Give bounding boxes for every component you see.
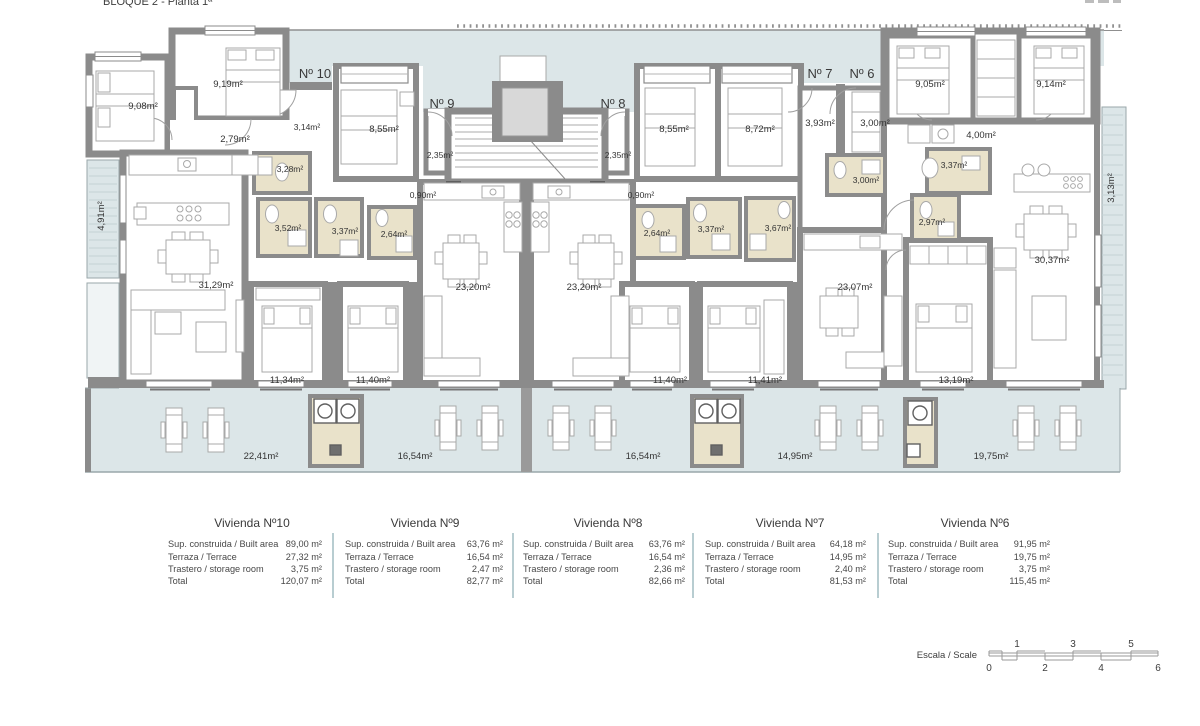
svg-text:1: 1 xyxy=(1014,639,1020,650)
svg-text:3,52m²: 3,52m² xyxy=(275,223,302,233)
svg-text:19,75m²: 19,75m² xyxy=(974,451,1009,462)
svg-text:Terraza / Terrace: Terraza / Terrace xyxy=(888,552,957,562)
svg-text:3,37m²: 3,37m² xyxy=(332,226,359,236)
svg-text:0,90m²: 0,90m² xyxy=(410,190,437,200)
svg-text:2,40 m²: 2,40 m² xyxy=(835,564,866,574)
svg-text:2,47 m²: 2,47 m² xyxy=(472,564,503,574)
svg-text:Trastero / storage room: Trastero / storage room xyxy=(888,564,984,574)
svg-text:Total: Total xyxy=(888,576,907,586)
svg-text:14,95m²: 14,95m² xyxy=(778,451,813,462)
svg-text:Nº 7: Nº 7 xyxy=(808,66,833,81)
svg-text:Trastero / storage room: Trastero / storage room xyxy=(345,564,441,574)
svg-text:3,28m²: 3,28m² xyxy=(277,164,304,174)
svg-text:9,14m²: 9,14m² xyxy=(1036,79,1066,90)
svg-text:2,35m²: 2,35m² xyxy=(605,150,632,160)
svg-text:23,20m²: 23,20m² xyxy=(567,282,602,293)
svg-text:11,34m²: 11,34m² xyxy=(270,375,304,386)
svg-text:Nº 8: Nº 8 xyxy=(601,96,626,111)
svg-text:Trastero / storage room: Trastero / storage room xyxy=(523,564,619,574)
svg-text:4,91m²: 4,91m² xyxy=(96,201,107,231)
svg-text:2,36 m²: 2,36 m² xyxy=(654,564,685,574)
svg-text:81,53 m²: 81,53 m² xyxy=(830,576,866,586)
svg-text:3,93m²: 3,93m² xyxy=(805,118,835,129)
svg-text:4: 4 xyxy=(1098,663,1104,674)
svg-text:3,37m²: 3,37m² xyxy=(941,160,968,170)
svg-text:Total: Total xyxy=(523,576,542,586)
svg-text:2,64m²: 2,64m² xyxy=(644,228,671,238)
svg-text:Terraza / Terrace: Terraza / Terrace xyxy=(705,552,774,562)
svg-text:Nº 9: Nº 9 xyxy=(430,96,455,111)
svg-text:Vivienda Nº7: Vivienda Nº7 xyxy=(756,516,825,530)
svg-text:Nº 6: Nº 6 xyxy=(850,66,875,81)
svg-text:0,90m²: 0,90m² xyxy=(628,190,655,200)
svg-text:Trastero / storage room: Trastero / storage room xyxy=(168,564,264,574)
svg-text:Trastero / storage room: Trastero / storage room xyxy=(705,564,801,574)
svg-text:89,00 m²: 89,00 m² xyxy=(286,539,322,549)
svg-text:16,54m²: 16,54m² xyxy=(398,451,433,462)
svg-text:4,00m²: 4,00m² xyxy=(966,130,996,141)
svg-text:9,19m²: 9,19m² xyxy=(213,79,243,90)
svg-text:2,35m²: 2,35m² xyxy=(427,150,454,160)
svg-text:Sup. construida / Built area: Sup. construida / Built area xyxy=(168,539,279,549)
svg-text:2: 2 xyxy=(1042,663,1048,674)
svg-text:82,77 m²: 82,77 m² xyxy=(467,576,503,586)
svg-text:11,40m²: 11,40m² xyxy=(356,375,390,386)
svg-text:14,95 m²: 14,95 m² xyxy=(830,552,866,562)
svg-text:2,97m²: 2,97m² xyxy=(919,217,946,227)
svg-text:6: 6 xyxy=(1155,663,1161,674)
svg-text:16,54 m²: 16,54 m² xyxy=(467,552,503,562)
svg-text:30,37m²: 30,37m² xyxy=(1035,255,1070,266)
svg-text:3,00m²: 3,00m² xyxy=(860,118,890,129)
svg-text:Sup. construida / Built area: Sup. construida / Built area xyxy=(888,539,999,549)
svg-text:Total: Total xyxy=(168,576,187,586)
svg-text:82,66 m²: 82,66 m² xyxy=(649,576,685,586)
svg-text:3,67m²: 3,67m² xyxy=(765,223,792,233)
svg-text:Total: Total xyxy=(705,576,724,586)
svg-text:63,76 m²: 63,76 m² xyxy=(467,539,503,549)
svg-text:9,05m²: 9,05m² xyxy=(915,79,945,90)
svg-text:3: 3 xyxy=(1070,639,1076,650)
svg-text:3,13m²: 3,13m² xyxy=(1106,173,1117,203)
svg-text:Terraza / Terrace: Terraza / Terrace xyxy=(168,552,237,562)
svg-text:Nº 10: Nº 10 xyxy=(299,66,331,81)
svg-text:3,75 m²: 3,75 m² xyxy=(291,564,322,574)
svg-text:120,07 m²: 120,07 m² xyxy=(281,576,322,586)
svg-text:64,18 m²: 64,18 m² xyxy=(830,539,866,549)
svg-text:91,95 m²: 91,95 m² xyxy=(1014,539,1050,549)
svg-text:3,37m²: 3,37m² xyxy=(698,224,725,234)
svg-text:63,76 m²: 63,76 m² xyxy=(649,539,685,549)
svg-text:16,54m²: 16,54m² xyxy=(626,451,661,462)
svg-text:22,41m²: 22,41m² xyxy=(244,451,279,462)
svg-text:Sup. construida / Built area: Sup. construida / Built area xyxy=(705,539,816,549)
svg-text:13,19m²: 13,19m² xyxy=(939,375,974,386)
svg-text:Sup. construida / Built area: Sup. construida / Built area xyxy=(345,539,456,549)
svg-text:Terraza / Terrace: Terraza / Terrace xyxy=(345,552,414,562)
svg-text:27,32 m²: 27,32 m² xyxy=(286,552,322,562)
svg-text:23,20m²: 23,20m² xyxy=(456,282,491,293)
svg-text:8,72m²: 8,72m² xyxy=(745,124,775,135)
svg-text:3,75 m²: 3,75 m² xyxy=(1019,564,1050,574)
svg-text:5: 5 xyxy=(1128,639,1134,650)
svg-text:2,79m²: 2,79m² xyxy=(220,134,250,145)
svg-text:19,75 m²: 19,75 m² xyxy=(1014,552,1050,562)
svg-text:3,00m²: 3,00m² xyxy=(853,175,880,185)
svg-text:115,45 m²: 115,45 m² xyxy=(1009,576,1050,586)
svg-text:3,14m²: 3,14m² xyxy=(294,122,321,132)
svg-text:23,07m²: 23,07m² xyxy=(838,282,873,293)
svg-text:31,29m²: 31,29m² xyxy=(199,280,234,291)
svg-text:16,54 m²: 16,54 m² xyxy=(649,552,685,562)
svg-text:Vivienda Nº6: Vivienda Nº6 xyxy=(941,516,1010,530)
svg-text:9,08m²: 9,08m² xyxy=(128,101,158,112)
svg-text:Total: Total xyxy=(345,576,364,586)
svg-text:11,40m²: 11,40m² xyxy=(653,375,687,386)
svg-text:Escala / Scale: Escala / Scale xyxy=(917,650,977,661)
svg-text:Sup. construida / Built area: Sup. construida / Built area xyxy=(523,539,634,549)
svg-text:8,55m²: 8,55m² xyxy=(659,124,689,135)
svg-text:Terraza / Terrace: Terraza / Terrace xyxy=(523,552,592,562)
svg-text:Vivienda Nº10: Vivienda Nº10 xyxy=(214,516,290,530)
svg-text:2,64m²: 2,64m² xyxy=(381,229,408,239)
svg-text:0: 0 xyxy=(986,663,992,674)
svg-text:Vivienda Nº8: Vivienda Nº8 xyxy=(574,516,643,530)
svg-text:11,41m²: 11,41m² xyxy=(748,375,782,386)
svg-text:8,55m²: 8,55m² xyxy=(369,124,399,135)
svg-text:Vivienda Nº9: Vivienda Nº9 xyxy=(391,516,460,530)
svg-text:BLOQUE 2 - Planta 1ª: BLOQUE 2 - Planta 1ª xyxy=(103,0,213,8)
